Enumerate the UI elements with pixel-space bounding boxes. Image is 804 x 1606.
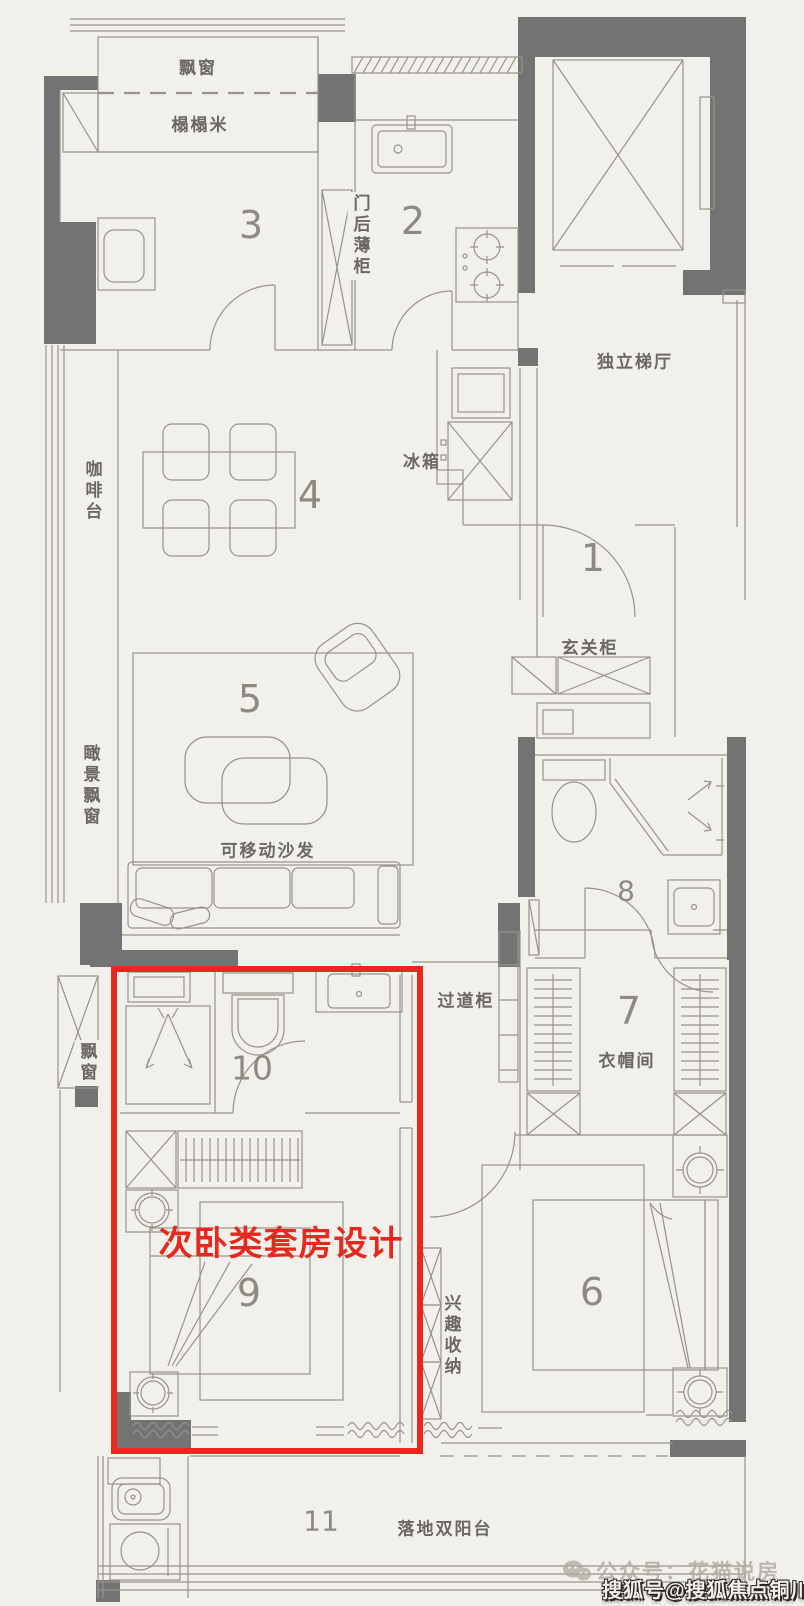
label-view-bay-window: 瞰景飘窗 [78,742,103,830]
kitchen-door-arc [392,291,452,350]
wechat-icon [562,1559,592,1583]
rug-6 [482,1165,644,1412]
label-bay-window-left: 飘窗 [75,1040,100,1086]
label-behind-door-cabinet: 门后薄柜 [348,192,373,280]
label-fridge: 冰箱 [403,448,441,473]
armchair [308,616,407,718]
label-balcony: 落地双阳台 [398,1515,493,1540]
bedroom6-door-arc [430,1132,515,1217]
stove [456,228,518,302]
highlight-box [111,966,423,1454]
label-elevator-hall: 独立梯厅 [597,348,673,373]
kitchen-sink [372,125,452,173]
corner-shower [610,758,722,855]
room-number-9: 9 [237,1271,261,1315]
label-movable-sofa: 可移动沙发 [221,837,316,862]
label-hallway-cabinet: 过道柜 [438,987,495,1012]
room3-door-arc [210,285,275,350]
room-number-5: 5 [238,677,262,721]
toilet-tank-8 [543,760,605,780]
highlight-title: 次卧类套房设计 [150,1216,412,1265]
floorplan-page: { "page": {"width": 804, "height": 1606,… [0,0,804,1606]
kitchen-window-hatch [354,57,516,73]
bed-6 [533,1200,705,1370]
room-number-3: 3 [239,203,263,247]
room-number-10: 10 [231,1049,273,1088]
coffee-table-2 [222,758,327,824]
living-rug [133,653,413,865]
room-number-8: 8 [617,875,635,908]
room-number-4: 4 [298,473,322,517]
label-coffee-counter: 咖啡台 [80,458,105,525]
label-entry-cabinet: 玄关柜 [562,634,619,659]
desk-chair [104,230,144,282]
room-number-6: 6 [580,1270,604,1314]
cloakroom-door-arc [651,930,713,992]
coffee-table-1 [185,737,290,803]
room-number-2: 2 [401,199,425,243]
sofa [128,862,400,928]
room-number-1: 1 [581,536,605,580]
label-hobby-storage: 兴趣收纳 [439,1292,464,1380]
label-cloakroom: 衣帽间 [599,1047,656,1072]
room-number-7: 7 [617,989,641,1033]
room-number-11: 11 [303,1505,339,1538]
label-tatami: 榻榻米 [172,111,229,136]
dining-table [143,452,295,528]
toilet-bowl-8 [552,782,596,842]
sohu-watermark: 搜狐号@搜狐焦点铜川站 [602,1574,804,1603]
label-bay-window-top: 飘窗 [179,54,217,79]
